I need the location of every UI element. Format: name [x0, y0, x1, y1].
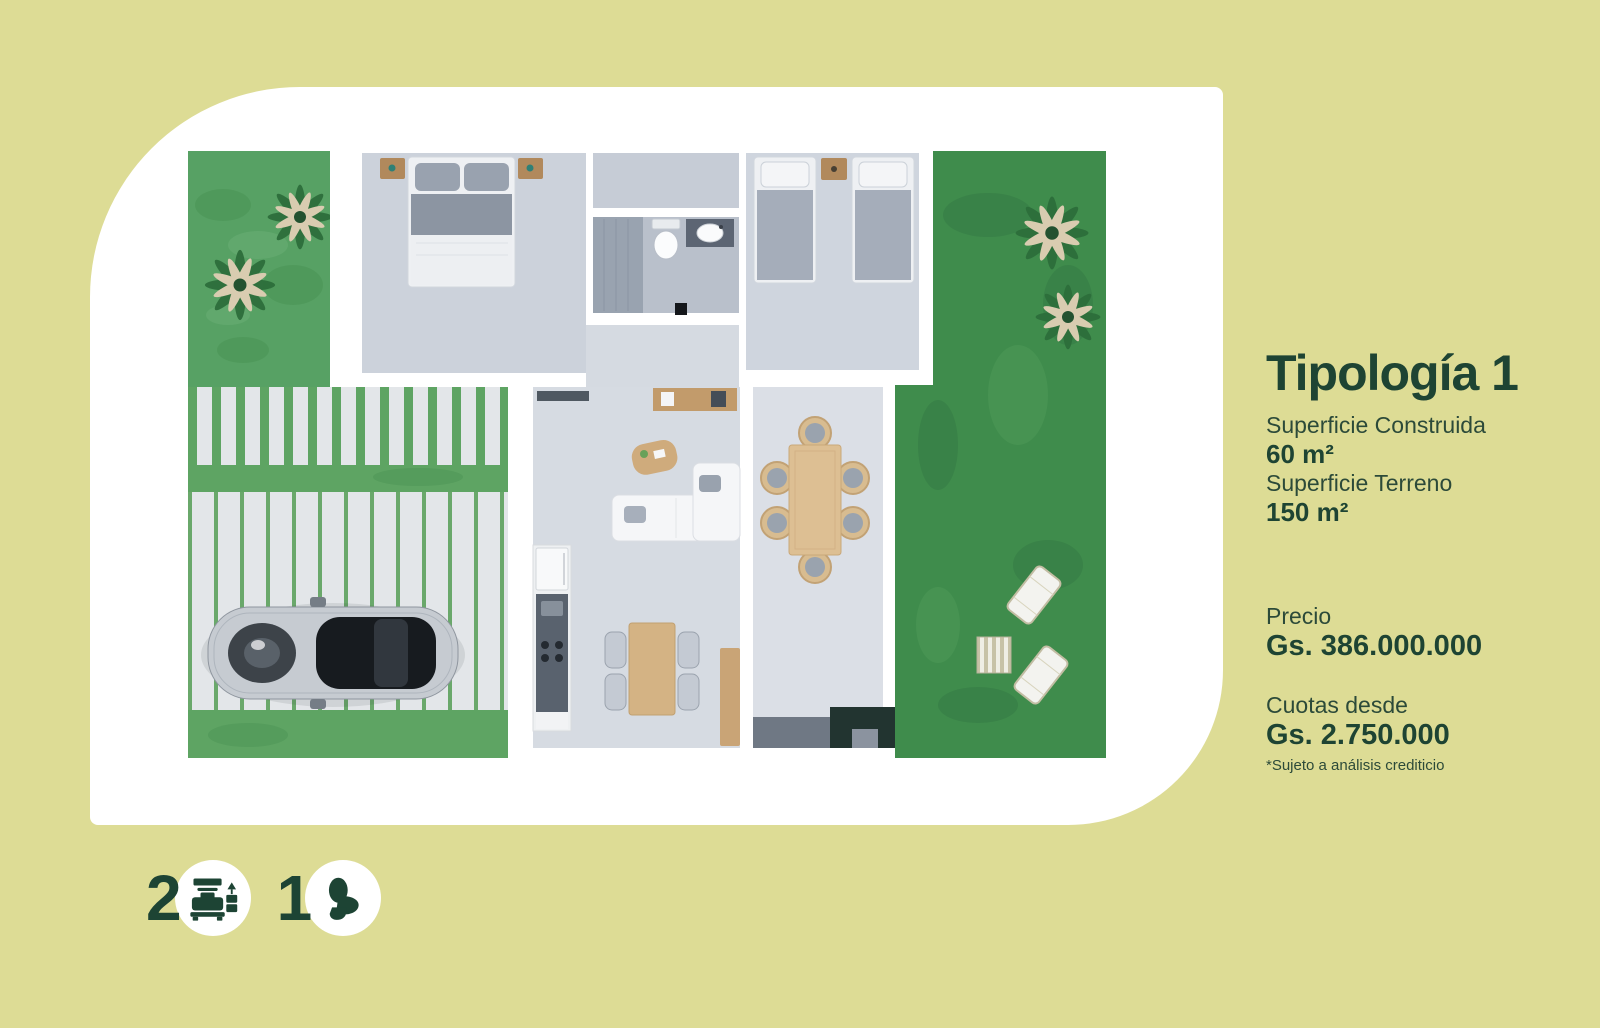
features-row: 2 1 — [146, 856, 381, 940]
typology-details: Tipología 1 Superficie Construida 60 m² … — [1266, 347, 1566, 527]
car — [201, 597, 465, 709]
price-label: Precio — [1266, 602, 1586, 630]
pricing-block: Precio Gs. 386.000.000 Cuotas desde Gs. … — [1266, 602, 1586, 775]
floor-plan — [188, 145, 1106, 758]
floor-plan-rendering — [188, 145, 1106, 758]
installments-value: Gs. 2.750.000 — [1266, 719, 1586, 752]
palm-tree-icon — [205, 250, 275, 320]
shower — [593, 217, 643, 313]
credit-disclaimer: *Sujeto a análisis crediticio — [1266, 756, 1586, 775]
bed-icon — [188, 873, 238, 923]
built-area-value: 60 m² — [1266, 439, 1566, 469]
garden-side-table — [977, 637, 1011, 673]
hallway-floor — [586, 325, 739, 387]
bathrooms-count: 1 — [277, 856, 311, 940]
front-yard — [188, 151, 332, 387]
wall — [593, 208, 739, 217]
flyer-canvas: Tipología 1 Superficie Construida 60 m² … — [0, 0, 1600, 1028]
toilet-icon — [318, 873, 368, 923]
bathrooms-badge — [305, 860, 381, 936]
typology-title: Tipología 1 — [1266, 347, 1566, 399]
palm-tree-icon — [1036, 285, 1101, 350]
palm-tree-icon — [268, 185, 333, 250]
palm-tree-icon — [1016, 197, 1089, 270]
land-area-label: Superficie Terreno — [1266, 469, 1566, 497]
land-area-value: 150 m² — [1266, 497, 1566, 527]
kitchen-counter — [533, 545, 571, 731]
price-value: Gs. 386.000.000 — [1266, 630, 1586, 663]
closet-floor — [593, 153, 739, 208]
installments-label: Cuotas desde — [1266, 691, 1586, 719]
built-area-label: Superficie Construida — [1266, 411, 1566, 439]
bedrooms-count: 2 — [146, 856, 180, 940]
bedrooms-badge — [175, 860, 251, 936]
